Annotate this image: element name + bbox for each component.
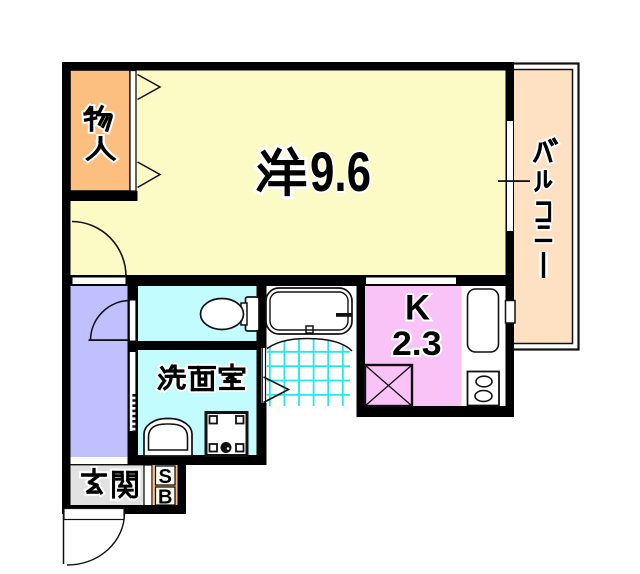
- svg-text:S: S: [159, 466, 172, 488]
- svg-text:B: B: [158, 487, 172, 509]
- svg-text:9.6: 9.6: [310, 140, 371, 203]
- svg-text:K: K: [405, 289, 430, 328]
- svg-text:2.3: 2.3: [392, 325, 442, 363]
